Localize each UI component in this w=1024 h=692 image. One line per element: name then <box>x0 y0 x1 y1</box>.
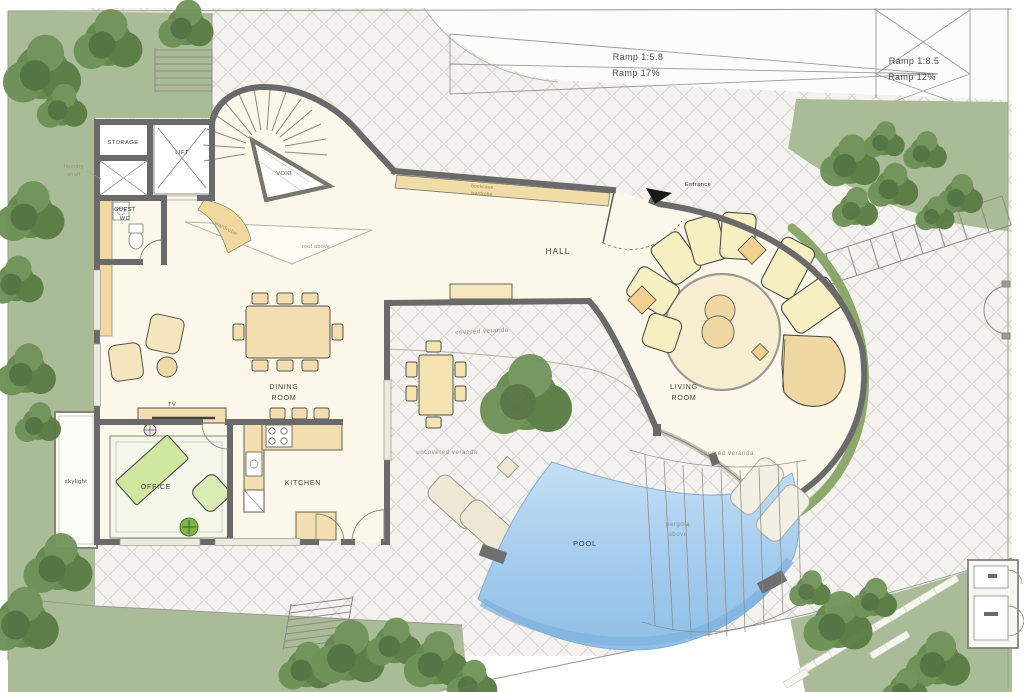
laundry-label-1: laundry <box>64 164 84 170</box>
kitchen-label: KITCHEN <box>285 480 321 487</box>
ramp-upper-ratio-label: Ramp 1:8.5 <box>889 56 940 66</box>
outbuilding <box>968 560 1024 648</box>
uncovered-veranda-label: uncovered veranda <box>416 449 478 456</box>
hall-sideboard <box>450 284 512 299</box>
ramp-main-grade-label: Ramp 17% <box>612 68 660 78</box>
skylight-label: skylight <box>65 479 88 485</box>
void-label: VOID <box>276 171 292 177</box>
living-room-label-2: ROOM <box>672 395 697 402</box>
storage-label: STORAGE <box>107 140 138 146</box>
entrance-label: Entrance <box>685 182 711 188</box>
site-plan-page: Ramp 1:5.8 Ramp 17% Ramp 1:8.5 Ramp 12% … <box>0 0 1024 692</box>
office-room <box>110 424 232 538</box>
toilet <box>129 231 143 249</box>
office-label: OFFICE <box>141 484 171 491</box>
ramp-main-ratio-label: Ramp 1:5.8 <box>613 52 664 62</box>
guest-wc-label-1: GUEST <box>114 207 136 213</box>
floor-plan-drawing: Ramp 1:5.8 Ramp 17% Ramp 1:8.5 Ramp 12% … <box>0 0 1024 692</box>
covered-veranda-right-label: covered veranda <box>700 450 754 457</box>
lift-cab <box>154 124 210 194</box>
living-room-label-1: LIVING <box>670 384 698 391</box>
pool-label: POOL <box>573 539 597 548</box>
pergola-label-1: pergola <box>666 521 690 528</box>
kitchen-sink <box>246 452 262 476</box>
lift-label: LIFT <box>175 150 189 156</box>
roof-above-label: roof above <box>302 244 330 250</box>
laundry-label-2: shaft <box>67 172 80 178</box>
ramp-upper-grade-label: Ramp 12% <box>888 72 936 82</box>
hall-label: HALL <box>546 247 571 256</box>
dining-room-label-2: ROOM <box>272 395 297 402</box>
guest-wc-label-2: WC <box>120 216 130 222</box>
dining-room-label-1: DINING <box>269 384 298 391</box>
pergola-label-2: above <box>668 531 687 538</box>
tv-label: TV <box>168 402 176 408</box>
